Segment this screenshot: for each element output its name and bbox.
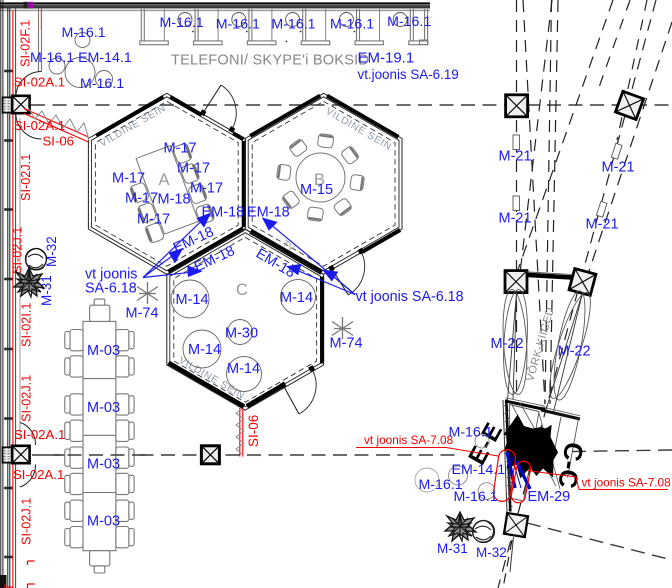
svg-text:M-17: M-17 bbox=[190, 181, 223, 197]
svg-text:SI-02J.1: SI-02J.1 bbox=[20, 498, 34, 545]
svg-text:M-16.1: M-16.1 bbox=[449, 425, 493, 441]
svg-text:EM-18: EM-18 bbox=[247, 205, 290, 221]
svg-text:M-30: M-30 bbox=[225, 326, 258, 342]
svg-text:SI-06: SI-06 bbox=[43, 134, 75, 149]
svg-text:M-14: M-14 bbox=[176, 292, 209, 308]
svg-text:M-17: M-17 bbox=[164, 141, 197, 157]
svg-text:vt joonis SA-7.08: vt joonis SA-7.08 bbox=[364, 433, 454, 447]
svg-text:M-03: M-03 bbox=[87, 514, 120, 530]
svg-text:M-21: M-21 bbox=[602, 160, 635, 176]
svg-text:M-16.1: M-16.1 bbox=[62, 25, 106, 41]
svg-text:vt joonis SA-6.18: vt joonis SA-6.18 bbox=[356, 289, 464, 305]
svg-text:SI-02J.1: SI-02J.1 bbox=[19, 154, 33, 201]
svg-text:M-16.1: M-16.1 bbox=[271, 17, 315, 33]
svg-text:M-22: M-22 bbox=[558, 344, 591, 360]
svg-text:M-14: M-14 bbox=[188, 342, 221, 358]
svg-text:T: T bbox=[3, 583, 17, 588]
svg-text:SI-02A.1: SI-02A.1 bbox=[14, 75, 65, 90]
svg-text:M-16.1: M-16.1 bbox=[454, 489, 498, 505]
svg-text:A: A bbox=[159, 171, 170, 189]
svg-text:SI-06: SI-06 bbox=[246, 415, 261, 447]
svg-text:M-16.1: M-16.1 bbox=[216, 17, 260, 33]
svg-text:SI-02A.1: SI-02A.1 bbox=[13, 467, 64, 482]
svg-text:M-03: M-03 bbox=[87, 400, 120, 416]
svg-text:M-74: M-74 bbox=[126, 306, 159, 322]
svg-text:EM-29: EM-29 bbox=[528, 489, 571, 505]
svg-text:M-18: M-18 bbox=[158, 192, 191, 208]
svg-text:M-21: M-21 bbox=[499, 149, 532, 165]
svg-text:M-17: M-17 bbox=[125, 191, 158, 207]
svg-text:SI-02F.1: SI-02F.1 bbox=[19, 20, 33, 67]
svg-text:vt joonis SA-7.08: vt joonis SA-7.08 bbox=[582, 476, 672, 490]
svg-text:TELEFONI/ SKYPE'i BOKSID: TELEFONI/ SKYPE'i BOKSID bbox=[171, 53, 369, 69]
svg-text:M-03: M-03 bbox=[87, 343, 120, 359]
svg-text:SI-02J.1: SI-02J.1 bbox=[20, 375, 34, 422]
svg-text:M-17: M-17 bbox=[112, 171, 145, 187]
svg-text:M-16.1: M-16.1 bbox=[160, 15, 204, 31]
svg-text:M-74: M-74 bbox=[330, 336, 363, 352]
svg-text:M-31: M-31 bbox=[437, 541, 468, 556]
svg-text:M-22: M-22 bbox=[491, 336, 524, 352]
svg-text:M-14: M-14 bbox=[227, 361, 260, 377]
svg-text:M-17: M-17 bbox=[177, 161, 210, 177]
svg-text:M-16.1 EM-14.1: M-16.1 EM-14.1 bbox=[30, 50, 132, 66]
svg-text:M-16.1: M-16.1 bbox=[387, 14, 431, 30]
svg-text:M-21: M-21 bbox=[499, 211, 532, 227]
svg-text:M-15: M-15 bbox=[300, 182, 333, 198]
svg-text:M-16.1: M-16.1 bbox=[330, 17, 374, 33]
svg-text:SA-6.18: SA-6.18 bbox=[85, 281, 137, 297]
svg-text:EM-14.1: EM-14.1 bbox=[452, 462, 506, 478]
svg-text:M-03: M-03 bbox=[87, 457, 120, 473]
svg-text:M-32: M-32 bbox=[476, 545, 507, 560]
svg-text:M-21: M-21 bbox=[586, 217, 619, 233]
svg-text:M-16.1: M-16.1 bbox=[80, 76, 124, 92]
svg-text:SI-02I.1: SI-02I.1 bbox=[20, 303, 34, 347]
svg-text:SI-02J.1: SI-02J.1 bbox=[11, 227, 25, 274]
svg-text:M-14: M-14 bbox=[280, 290, 313, 306]
svg-text:EM-19.1: EM-19.1 bbox=[358, 50, 415, 67]
svg-text:SI-02A.1: SI-02A.1 bbox=[14, 118, 65, 133]
svg-text:M-17: M-17 bbox=[137, 212, 170, 228]
svg-text:SI-02A.1: SI-02A.1 bbox=[14, 427, 65, 442]
svg-text:M-31: M-31 bbox=[39, 275, 54, 306]
svg-text:vt.joonis SA-6.19: vt.joonis SA-6.19 bbox=[358, 67, 459, 82]
svg-text:C: C bbox=[236, 281, 248, 299]
